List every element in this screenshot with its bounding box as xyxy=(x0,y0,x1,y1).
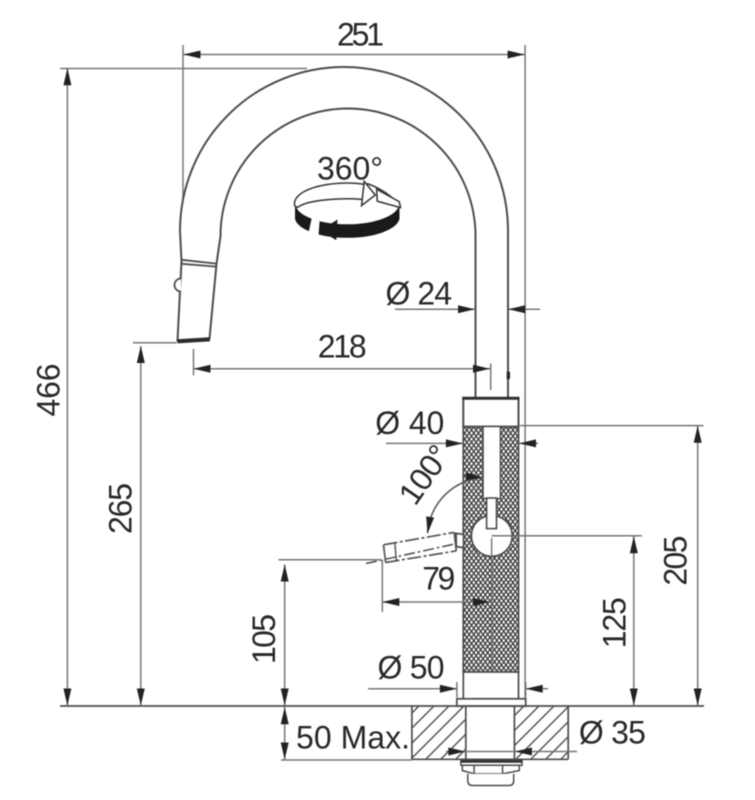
svg-text:Ø 35: Ø 35 xyxy=(579,715,646,751)
svg-text:125: 125 xyxy=(597,597,633,648)
svg-text:251: 251 xyxy=(337,17,384,53)
svg-text:265: 265 xyxy=(103,483,139,534)
svg-text:Ø 24: Ø 24 xyxy=(386,275,453,311)
svg-text:Ø 40: Ø 40 xyxy=(375,405,444,441)
svg-text:79: 79 xyxy=(422,561,455,597)
svg-text:50 Max.: 50 Max. xyxy=(296,720,410,756)
svg-text:218: 218 xyxy=(318,329,367,365)
svg-text:105: 105 xyxy=(246,614,282,664)
svg-text:466: 466 xyxy=(31,364,67,417)
svg-text:205: 205 xyxy=(658,536,694,586)
svg-text:360°: 360° xyxy=(317,151,383,187)
svg-text:Ø 50: Ø 50 xyxy=(378,650,445,686)
